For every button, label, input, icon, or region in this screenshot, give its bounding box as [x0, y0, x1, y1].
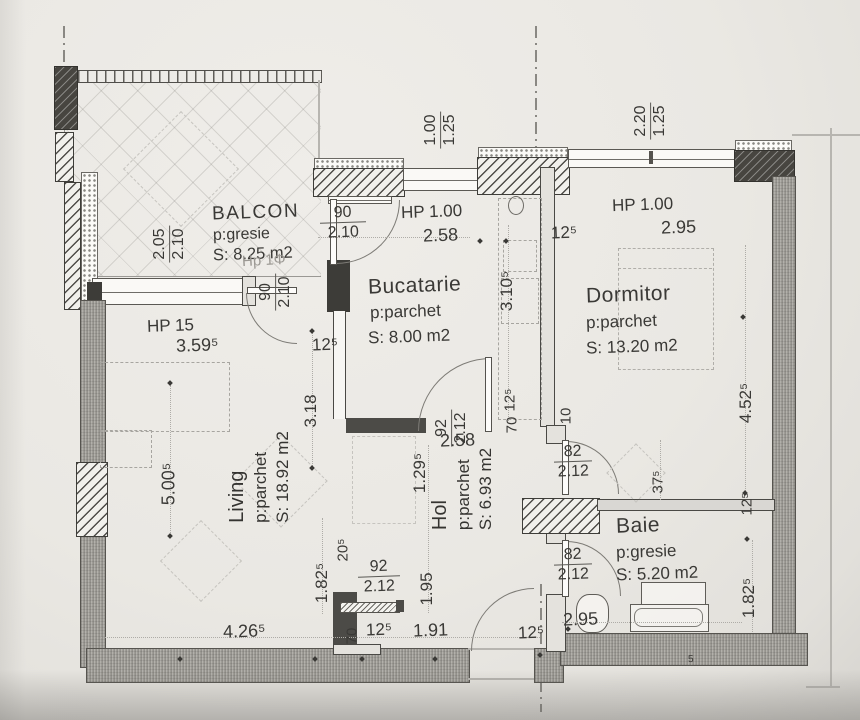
room-area-dormitor: S: 13.20 m2 [586, 335, 678, 358]
balcony-side-dim-pair: 2.05 2.10 [151, 225, 189, 262]
door-label-kitchen-balcony: 90 2.10 [319, 202, 366, 243]
floor-diagonal-decor [160, 520, 242, 602]
axis-dim-pair: 2.20 1.25 [632, 102, 670, 139]
window-width-bedroom: 2.95 [661, 216, 697, 238]
window-width-living: 3.59⁵ [176, 334, 219, 356]
dim-bath-width: 2.95 [563, 608, 599, 630]
wall-pier [55, 132, 74, 182]
dim-wall: 12⁵ [739, 493, 756, 516]
door-hinge-block [396, 600, 404, 612]
room-area-baie: S: 5.20 m2 [616, 563, 699, 586]
dim-living-bottom: 4.26⁵ [223, 620, 266, 642]
dim: 2.10 [171, 225, 189, 262]
room-label-bucatarie: Bucatarie [368, 272, 462, 299]
axis-dim: 1.25 [442, 111, 460, 148]
door-width: 90 [319, 202, 366, 224]
dim-living-upper: 3.18 [301, 394, 321, 427]
wall-kitchen-south [346, 418, 426, 433]
dim-chain [745, 245, 746, 491]
room-area-bucatarie: S: 8.00 m2 [368, 326, 451, 349]
room-note-balcon: Hp 1Φ [242, 251, 286, 270]
room-label-living: Living p:parchet S: 18.92 m2 [224, 431, 294, 523]
room-area-hol: S: 6.93 m2 [475, 448, 497, 530]
door-height: 2.12 [554, 565, 593, 586]
door-label-bathroom: 82 2.12 [553, 544, 592, 585]
wall-kitchen-west [333, 311, 346, 419]
door-height: 2.12 [358, 576, 401, 597]
dim: 2.05 [151, 225, 170, 262]
wall-kitchen-west-top [327, 260, 350, 312]
sofa-outline [100, 362, 230, 432]
axis-dim-pair: 1.00 1.25 [422, 111, 460, 148]
bathtub-inner [634, 608, 703, 627]
dim-wall: 12⁵ [502, 389, 519, 412]
dim-bath-height: 1.82⁵ [739, 578, 759, 618]
dim-wall: 70 [344, 628, 361, 645]
window-kitchen [403, 168, 480, 191]
dim-hol-bottom: 1.91 [413, 619, 449, 641]
floor-plan: BALCON p:gresie S: 8.25 m2 Hp 1Φ Bucatar… [0, 0, 860, 720]
room-name-living: Living [224, 431, 250, 523]
wall-right [772, 176, 796, 640]
threshold-line [468, 678, 534, 680]
room-floor-balcon: p:gresie [213, 225, 271, 245]
dim-chain [100, 637, 540, 638]
dim-wall: 12⁵ [312, 335, 339, 356]
dim-hol-width: 2.58 [440, 429, 476, 451]
window-mullion [649, 151, 653, 164]
wall-bottom-bath [560, 633, 808, 666]
dim-wall: 20⁵ [335, 539, 352, 562]
window-width-kitchen: 2.58 [423, 224, 459, 246]
vent-symbol [508, 196, 524, 215]
dim-tick [167, 533, 173, 539]
axis-dim: 1.00 [422, 111, 441, 148]
washbasin [641, 582, 706, 605]
door-width: 82 [553, 441, 592, 463]
dim-tick [309, 328, 315, 334]
dim-wall: 37⁵ [650, 471, 667, 494]
door-height: 2.10 [277, 273, 295, 310]
furniture-outline [100, 430, 152, 468]
room-label-hol: Hol p:parchet S: 6.93 m2 [427, 448, 497, 530]
dim-hol-upper: 1.29⁵ [410, 453, 430, 493]
room-floor-living: p:parchet [250, 431, 272, 523]
window-label-living: HP 15 [147, 315, 195, 337]
dim-kitchen-depth: 3.10⁵ [497, 271, 517, 311]
window-living-balcony [92, 278, 252, 305]
dim-wall: 12⁵ [366, 620, 393, 641]
dim-wall: 12⁵ [551, 223, 578, 244]
shaft-block [522, 498, 600, 534]
axis-dim: 2.20 [632, 102, 651, 139]
wall-pier-left [76, 462, 108, 537]
axis-dim: 1.25 [652, 102, 670, 139]
window-label-kitchen: HP 1.00 [401, 201, 463, 223]
dim-chain [170, 385, 171, 535]
dim-bedroom-depth: 4.52⁵ [736, 383, 756, 423]
door-width: 92 [357, 556, 400, 578]
entrance-step [333, 644, 381, 655]
wall-pier-facade [313, 168, 405, 197]
dim-hol-lower: 1.95 [417, 572, 437, 605]
dim-tick [477, 238, 483, 244]
door-width: 90 [257, 273, 276, 310]
room-area-living: S: 18.92 m2 [272, 431, 294, 523]
window-bedroom [568, 149, 738, 168]
window-label-bedroom: HP 1.00 [612, 194, 674, 216]
door-leaf-entrance [340, 602, 400, 613]
door-label-living-balcony: 90 2.10 [257, 273, 295, 310]
wall-pier [54, 66, 78, 130]
wall-left-balcony [64, 182, 81, 310]
door-height: 2.10 [320, 222, 367, 243]
door-label-entrance: 92 2.12 [357, 556, 400, 597]
bed-pillow-line [618, 268, 712, 269]
door-label-bedroom: 82 2.12 [553, 441, 592, 482]
dim-tub-label: 5 [688, 654, 694, 665]
dim-living-lower: 1.82⁵ [312, 563, 332, 603]
room-floor-dormitor: p:parchet [586, 311, 658, 333]
door-width: 82 [553, 544, 592, 566]
hallway-cabinet [352, 436, 416, 524]
dim-wall: 10 [558, 408, 575, 425]
balcony-railing [60, 70, 322, 83]
property-line [806, 686, 840, 688]
room-floor-baie: p:gresie [616, 541, 677, 563]
wall-pier-facade [477, 157, 570, 195]
room-label-balcon: BALCON [212, 200, 300, 225]
property-line [830, 128, 832, 688]
dim-wall: 12⁵ [518, 623, 545, 644]
door-height: 2.12 [554, 462, 593, 483]
door-leaf [485, 357, 492, 432]
dim-living-width: 5.00⁵ [159, 463, 180, 506]
room-floor-hol: p:parchet [453, 448, 475, 530]
property-line [792, 134, 860, 136]
wall-bottom [86, 648, 470, 683]
room-name-hol: Hol [427, 448, 453, 530]
dim-wall: 70 [504, 417, 521, 434]
wall-kitchen-bedroom [540, 167, 555, 427]
room-label-baie: Baie [616, 513, 661, 539]
dim-tick [744, 536, 750, 542]
room-floor-bucatarie: p:parchet [370, 301, 442, 323]
room-label-dormitor: Dormitor [586, 282, 671, 309]
